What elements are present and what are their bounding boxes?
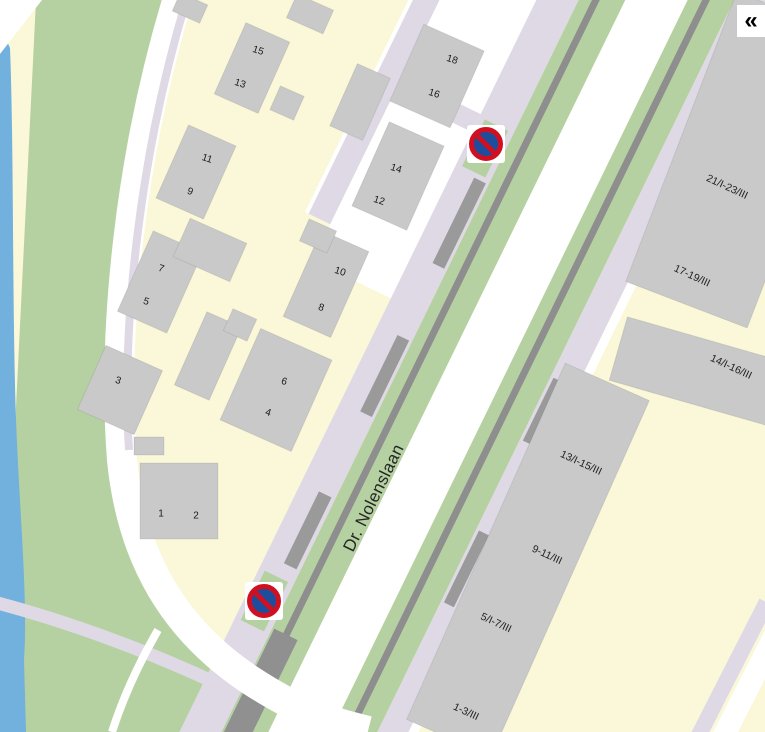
no-parking-sign-marker[interactable] [245, 582, 283, 620]
no-parking-icon [247, 584, 281, 618]
house-number: 1 [158, 509, 164, 520]
no-parking-icon [469, 127, 503, 161]
chevron-double-left-icon: « [744, 9, 757, 33]
collapse-panel-button[interactable]: « [737, 5, 765, 37]
no-parking-sign-marker[interactable] [467, 125, 505, 163]
no-parking-slash [247, 585, 280, 618]
no-parking-slash [469, 128, 502, 161]
map-tiles [0, 0, 765, 732]
map-canvas[interactable]: 15 13 11 9 7 5 3 10 8 6 4 14 12 18 16 1 … [0, 0, 765, 732]
house-number: 2 [193, 511, 199, 522]
